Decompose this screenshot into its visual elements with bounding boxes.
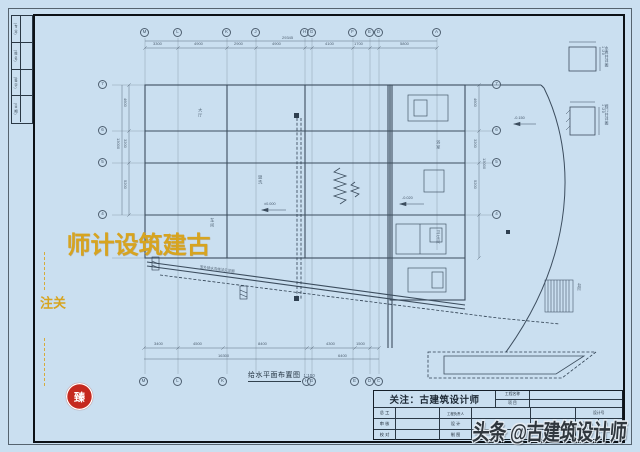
dim-label: 4600: [123, 98, 127, 107]
detail-label-text: 水表井详图: [605, 46, 610, 68]
detail-label: 水表井详图 1:20: [601, 46, 610, 68]
room-label: 车间: [210, 218, 214, 227]
stair-label: 台阶: [577, 283, 581, 291]
grid-bubble: 4: [98, 210, 107, 219]
grid-bubble: C: [374, 377, 383, 386]
dim-label: 3200: [123, 139, 127, 148]
grid-bubble: 4: [492, 210, 501, 219]
field-label-project-name: 工程名称: [496, 391, 530, 400]
level-annotation: -0.150: [514, 117, 525, 121]
field-value: [530, 400, 622, 409]
grid-bubble: E: [365, 28, 374, 37]
grid-bubble: 6: [98, 126, 107, 135]
field-label-review: 审 核: [374, 419, 396, 430]
room-label: 浴室: [436, 140, 440, 149]
dim-label: 4500: [193, 342, 202, 346]
plan-title-text: 给水平面布置图: [248, 370, 301, 382]
level-annotation: ±0.000: [264, 203, 276, 207]
dim-label: 5800: [400, 42, 409, 46]
grid-bubble: 6: [492, 126, 501, 135]
dim-label: 4100: [325, 42, 334, 46]
field-label-draft: 制 图: [440, 430, 472, 440]
grid-bubble: J: [251, 28, 260, 37]
grid-bubble: F: [348, 28, 357, 37]
dim-total-label: 16300: [218, 354, 229, 358]
grid-bubble: D: [365, 377, 374, 386]
dim-total-label: 29345: [282, 36, 293, 40]
ramp-outline: [444, 356, 584, 374]
plan-linework-svg: [0, 0, 640, 452]
grid-bubble: A: [432, 28, 441, 37]
grid-bubble: 5: [98, 158, 107, 167]
grid-bubble: D: [374, 28, 383, 37]
grid-bubble: L: [173, 28, 182, 37]
dim-label: 4300: [326, 342, 335, 346]
detail-label-text: 阀门井详图: [605, 104, 610, 126]
dim-label: 1500: [356, 342, 365, 346]
detail-label: 阀门井详图 1:20: [601, 104, 610, 126]
plan-title: 给水平面布置图 1:100: [248, 370, 315, 382]
pipe-dashed-lines: [160, 118, 596, 378]
grid-bubble: E: [350, 377, 359, 386]
drawing-sheet: (专 业) (姓 名) (签 字) (日 期): [0, 0, 640, 452]
dim-label: 4900: [272, 42, 281, 46]
grid-bubble: 5: [492, 158, 501, 167]
room-label: 大厅: [198, 108, 202, 117]
dim-total-label: 13000: [482, 158, 486, 169]
detail-drawings: [566, 42, 600, 135]
room-label: 盥洗: [258, 175, 262, 184]
grid-bubble: 7: [98, 80, 107, 89]
grid-bubble: L: [173, 377, 182, 386]
grid-bubble: K: [218, 377, 227, 386]
room-label: 卫生间: [436, 230, 440, 244]
dim-label: 3200: [473, 139, 477, 148]
field-value: [396, 408, 440, 419]
title-block-attention: 关注：古建筑设计师: [374, 391, 496, 408]
dim-label: 3400: [154, 342, 163, 346]
field-label-chief: 总 工: [374, 408, 396, 419]
dim-label: 1700: [354, 42, 363, 46]
dim-total-label: 6400: [338, 354, 347, 358]
grid-bubble: G: [307, 28, 316, 37]
dim-total-label: 13000: [116, 138, 120, 149]
dim-label: 5200: [123, 180, 127, 189]
field-label-proof: 校 对: [374, 430, 396, 440]
coil-symbols: [334, 168, 359, 204]
field-label-design: 设 计: [440, 419, 472, 430]
fixture-lines: [396, 95, 448, 292]
grid-bubble: M: [140, 28, 149, 37]
dim-label: 4600: [473, 98, 477, 107]
field-value: [396, 419, 440, 430]
field-value: [530, 391, 622, 400]
field-value: [396, 430, 440, 440]
field-label-lead: 工程负责人: [440, 408, 472, 419]
wall-lines: [145, 85, 565, 352]
bottom-right-watermark: 头条 @古建筑设计师: [471, 415, 627, 447]
leader-arrows: [262, 122, 536, 211]
plan-title-scale: 1:100: [304, 373, 315, 378]
level-annotation: -0.020: [402, 197, 413, 201]
grid-bubble: 7: [492, 80, 501, 89]
field-label-item: 项 目: [496, 400, 530, 409]
dim-label: 8400: [258, 342, 267, 346]
grid-lines: [112, 38, 492, 374]
dim-label: 5200: [473, 180, 477, 189]
dim-label: 2900: [234, 42, 243, 46]
grid-bubble: K: [222, 28, 231, 37]
grid-bubble: M: [139, 377, 148, 386]
dim-label: 4900: [194, 42, 203, 46]
dim-label: 3300: [153, 42, 162, 46]
stair-hatch: [545, 280, 573, 312]
